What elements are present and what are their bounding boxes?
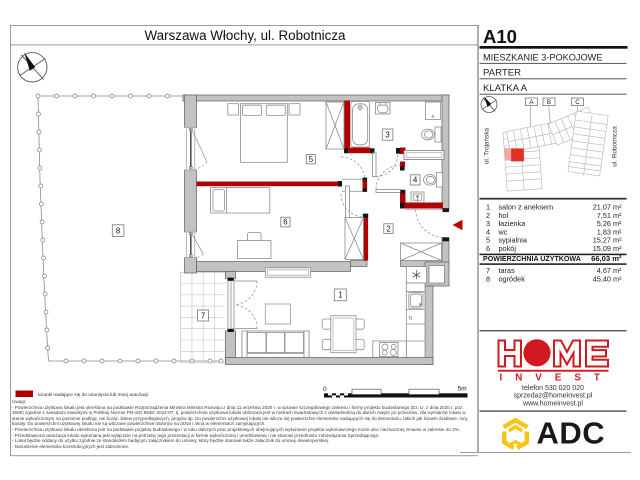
- svg-text:B: B: [547, 99, 551, 106]
- svg-text:5m: 5m: [458, 386, 468, 393]
- svg-text:4: 4: [413, 176, 418, 185]
- svg-text:0: 0: [323, 386, 327, 393]
- svg-text:PARTER: PARTER: [483, 68, 521, 79]
- svg-text:66,03 m²: 66,03 m²: [591, 254, 622, 263]
- svg-text:2: 2: [386, 224, 390, 233]
- svg-text:45,40 m²: 45,40 m²: [593, 274, 622, 283]
- svg-text:www.homeinvest.pl: www.homeinvest.pl: [522, 401, 583, 408]
- svg-text:ul. Trojańska: ul. Trojańska: [484, 127, 491, 164]
- svg-text:INVEST: INVEST: [500, 372, 613, 383]
- svg-text:ul. Robotnicza: ul. Robotnicza: [612, 126, 619, 167]
- svg-text:8: 8: [116, 226, 120, 235]
- svg-text:Warszawa Włochy, ul. Robotnicz: Warszawa Włochy, ul. Robotnicza: [145, 28, 346, 43]
- svg-text:7: 7: [201, 312, 205, 321]
- svg-text:5: 5: [309, 155, 314, 164]
- svg-text:MIESZKANIE 3-POKOJOWE: MIESZKANIE 3-POKOJOWE: [483, 52, 602, 62]
- svg-text:C: C: [575, 99, 580, 106]
- svg-text:A10: A10: [483, 26, 517, 47]
- svg-text:ścianki nadające się do usunię: ścianki nadające się do usunięcia lub in…: [38, 392, 149, 398]
- svg-text:1: 1: [338, 291, 342, 300]
- svg-text:6: 6: [283, 218, 287, 227]
- svg-text:KLATKA A: KLATKA A: [483, 83, 528, 94]
- svg-text:telefon 530 020 020: telefon 530 020 020: [522, 385, 584, 392]
- svg-text:15,09 m²: 15,09 m²: [593, 244, 622, 253]
- svg-text:POWIERZCHNIA UŻYTKOWA: POWIERZCHNIA UŻYTKOWA: [483, 254, 581, 263]
- svg-text:Zl: Zl: [408, 316, 414, 320]
- svg-text:pokój: pokój: [499, 244, 517, 253]
- svg-text:ogródek: ogródek: [499, 274, 526, 283]
- svg-text:8: 8: [486, 274, 490, 283]
- svg-text:ADC: ADC: [537, 416, 606, 451]
- svg-text:3: 3: [385, 130, 389, 139]
- svg-text:a.: a.: [432, 114, 436, 119]
- svg-text:sprzedaz@homeinvest.pl: sprzedaz@homeinvest.pl: [514, 393, 593, 400]
- svg-text:6: 6: [486, 244, 490, 253]
